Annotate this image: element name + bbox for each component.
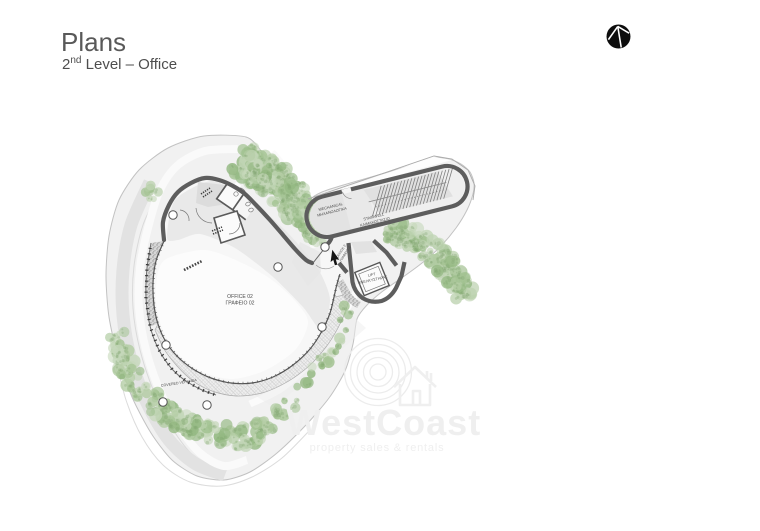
svg-text:property sales & rentals: property sales & rentals: [310, 442, 445, 454]
svg-text:ΓΡΑΦΕΙΟ 02: ΓΡΑΦΕΙΟ 02: [226, 301, 255, 307]
svg-text:WestCoast: WestCoast: [287, 402, 481, 443]
svg-text:OFFICE 02: OFFICE 02: [227, 294, 253, 300]
